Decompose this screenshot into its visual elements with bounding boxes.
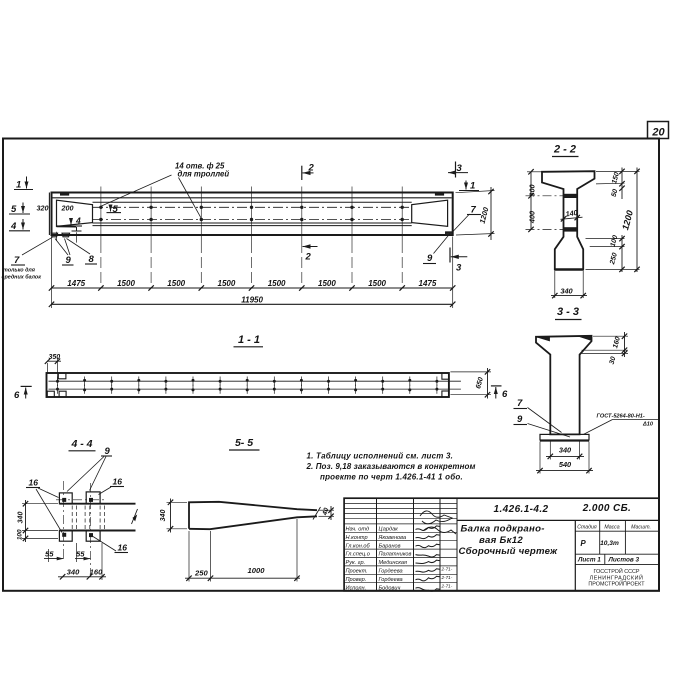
svg-text:5: 5 [11, 204, 17, 215]
svg-text:для троллей: для троллей [178, 170, 230, 179]
svg-text:1500: 1500 [368, 279, 386, 288]
svg-text:7: 7 [517, 398, 523, 409]
svg-text:Гордеева: Гордеева [379, 577, 403, 583]
svg-text:1500: 1500 [117, 279, 135, 288]
svg-text:1500: 1500 [167, 279, 185, 288]
svg-text:7: 7 [14, 255, 20, 266]
svg-text:проекте по черт 1.426.1-41 1 о: проекте по черт 1.426.1-41 1 обо. [320, 473, 463, 482]
svg-text:2. Поз. 9,18 заказываются в ко: 2. Поз. 9,18 заказываются в конкретном [306, 462, 476, 471]
svg-text:Провер.: Провер. [346, 577, 367, 583]
svg-text:16: 16 [118, 543, 128, 553]
svg-text:2-71-: 2-71- [441, 567, 453, 572]
svg-text:2-71-: 2-71- [441, 583, 453, 588]
svg-text:3 - 3: 3 - 3 [557, 306, 579, 318]
svg-text:1475: 1475 [67, 279, 85, 288]
svg-text:2-71-: 2-71- [441, 575, 453, 580]
svg-text:1.426.1-4.2: 1.426.1-4.2 [494, 504, 549, 515]
svg-text:Мединская: Мединская [379, 560, 408, 566]
svg-text:Проект.: Проект. [346, 569, 368, 575]
svg-text:Бодович: Бодович [379, 585, 401, 591]
svg-text:55: 55 [76, 550, 85, 559]
svg-text:2 - 2: 2 - 2 [553, 144, 576, 156]
svg-text:только для: только для [3, 268, 36, 274]
svg-text:340: 340 [160, 510, 167, 522]
svg-text:ЛЕНИНГРАДСКИЙ: ЛЕНИНГРАДСКИЙ [590, 573, 644, 581]
svg-text:16: 16 [29, 478, 39, 488]
svg-text:1: 1 [470, 181, 475, 192]
svg-text:6: 6 [14, 390, 20, 401]
svg-text:Палатников: Палатников [379, 552, 412, 558]
svg-text:Исполн.: Исполн. [346, 585, 367, 591]
svg-text:Нач. отд: Нач. отд [346, 527, 370, 533]
svg-text:9: 9 [105, 446, 111, 457]
svg-text:5: 5 [113, 204, 119, 215]
svg-text:140: 140 [565, 208, 578, 219]
svg-text:340: 340 [560, 287, 573, 296]
svg-text:1475: 1475 [419, 279, 437, 288]
svg-text:10,3т: 10,3т [600, 540, 619, 547]
svg-text:100: 100 [17, 529, 24, 540]
svg-text:7: 7 [471, 205, 477, 216]
svg-text:Листов 3: Листов 3 [608, 557, 640, 564]
svg-text:340: 340 [67, 568, 80, 577]
svg-text:Масса: Масса [604, 524, 619, 530]
svg-text:Н.контр: Н.контр [346, 535, 368, 541]
svg-text:ГОСТ-5264-80-Н1-: ГОСТ-5264-80-Н1- [597, 414, 645, 420]
svg-text:160: 160 [90, 568, 103, 577]
svg-text:Рук. гр.: Рук. гр. [346, 560, 366, 566]
svg-text:2: 2 [308, 163, 315, 174]
svg-text:ПРОМСТРОЙПРОЕКТ: ПРОМСТРОЙПРОЕКТ [588, 580, 645, 588]
svg-text:8: 8 [89, 254, 95, 265]
svg-text:200: 200 [61, 204, 74, 213]
svg-text:2: 2 [305, 252, 312, 263]
svg-text:1500: 1500 [318, 279, 336, 288]
svg-text:320: 320 [37, 204, 49, 213]
svg-text:20: 20 [651, 127, 665, 139]
svg-text:3: 3 [456, 263, 462, 274]
svg-text:Яковенова: Яковенова [378, 535, 407, 541]
svg-text:Гл.кон.об: Гл.кон.об [346, 543, 371, 549]
svg-text:Сборочный чертеж: Сборочный чертеж [459, 546, 558, 557]
svg-text:9: 9 [427, 253, 433, 264]
svg-text:1: 1 [16, 180, 21, 191]
svg-text:1500: 1500 [268, 279, 286, 288]
svg-text:340: 340 [18, 512, 25, 524]
svg-text:16: 16 [113, 477, 123, 487]
svg-text:Масшт.: Масшт. [631, 524, 651, 530]
svg-text:Стадия: Стадия [577, 524, 597, 530]
svg-text:350: 350 [49, 354, 61, 361]
svg-text:вая Бк12: вая Бк12 [479, 535, 523, 546]
svg-text:6: 6 [502, 389, 508, 400]
svg-text:ГОССТРОЙ СССР: ГОССТРОЙ СССР [593, 567, 639, 575]
svg-text:2.000 СБ.: 2.000 СБ. [582, 503, 631, 514]
svg-text:Лист 1: Лист 1 [577, 557, 601, 564]
svg-text:5- 5: 5- 5 [235, 437, 253, 449]
svg-text:9: 9 [66, 255, 72, 266]
svg-text:540: 540 [559, 460, 572, 469]
svg-text:1 - 1: 1 - 1 [238, 334, 260, 346]
svg-text:Цардак: Цардак [379, 527, 399, 533]
svg-text:4: 4 [75, 216, 81, 226]
svg-text:Балка подкрано-: Балка подкрано- [461, 524, 545, 535]
svg-text:1500: 1500 [218, 279, 236, 288]
svg-text:Р: Р [580, 539, 586, 548]
svg-text:250: 250 [194, 569, 208, 578]
svg-text:3: 3 [457, 163, 463, 174]
svg-text:4 - 4: 4 - 4 [70, 438, 92, 450]
svg-text:300: 300 [528, 183, 537, 196]
svg-text:Гордеева: Гордеева [379, 569, 403, 575]
svg-text:Баранов: Баранов [379, 543, 401, 549]
svg-text:1. Таблицу исполнений см. лис: 1. Таблицу исполнений см. лист 3. [307, 452, 454, 461]
svg-text:400: 400 [528, 210, 537, 224]
svg-text:Гл.спец.о: Гл.спец.о [346, 552, 370, 558]
svg-text:55: 55 [45, 550, 54, 559]
svg-text:9: 9 [517, 414, 523, 425]
svg-text:1000: 1000 [248, 566, 266, 575]
svg-text:340: 340 [559, 446, 572, 455]
svg-text:11950: 11950 [241, 295, 263, 304]
svg-text:средних балок: средних балок [2, 274, 42, 281]
svg-text:Δ10: Δ10 [642, 422, 654, 428]
